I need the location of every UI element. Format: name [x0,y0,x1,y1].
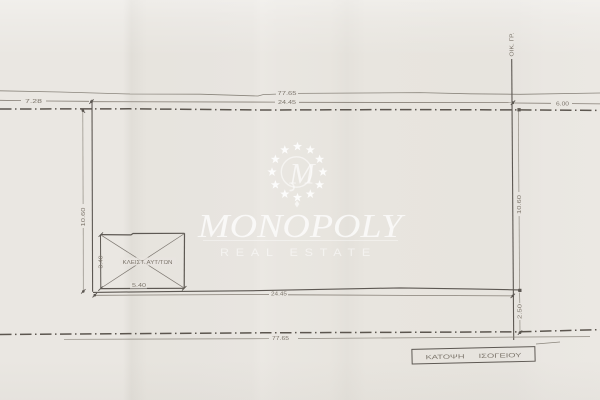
svg-text:10.60: 10.60 [81,208,87,227]
svg-text:ΙΣΟΓΕΙΟΥ: ΙΣΟΓΕΙΟΥ [478,352,521,360]
svg-text:5.40: 5.40 [132,283,146,289]
svg-text:2.50: 2.50 [518,304,524,319]
svg-text:10.60: 10.60 [517,195,523,214]
svg-text:77.65: 77.65 [272,336,289,342]
svg-text:MONOPOLY: MONOPOLY [197,208,406,245]
svg-text:7.28: 7.28 [25,99,42,105]
svg-text:3.40: 3.40 [98,256,104,269]
svg-text:REAL ESTATE: REAL ESTATE [220,247,377,259]
svg-text:ΟΙΚ. ΓΡ.: ΟΙΚ. ΓΡ. [509,32,515,56]
svg-text:24.45: 24.45 [271,291,287,297]
svg-text:77.65: 77.65 [278,91,297,97]
svg-text:ΚΛΕΙΣΤ. ΑΥΤ/ΤΩΝ: ΚΛΕΙΣΤ. ΑΥΤ/ΤΩΝ [123,260,173,266]
svg-text:24.45: 24.45 [278,100,296,106]
svg-text:ΚΑΤΟΨΗ: ΚΑΤΟΨΗ [425,353,464,361]
svg-text:6.00: 6.00 [556,101,569,107]
